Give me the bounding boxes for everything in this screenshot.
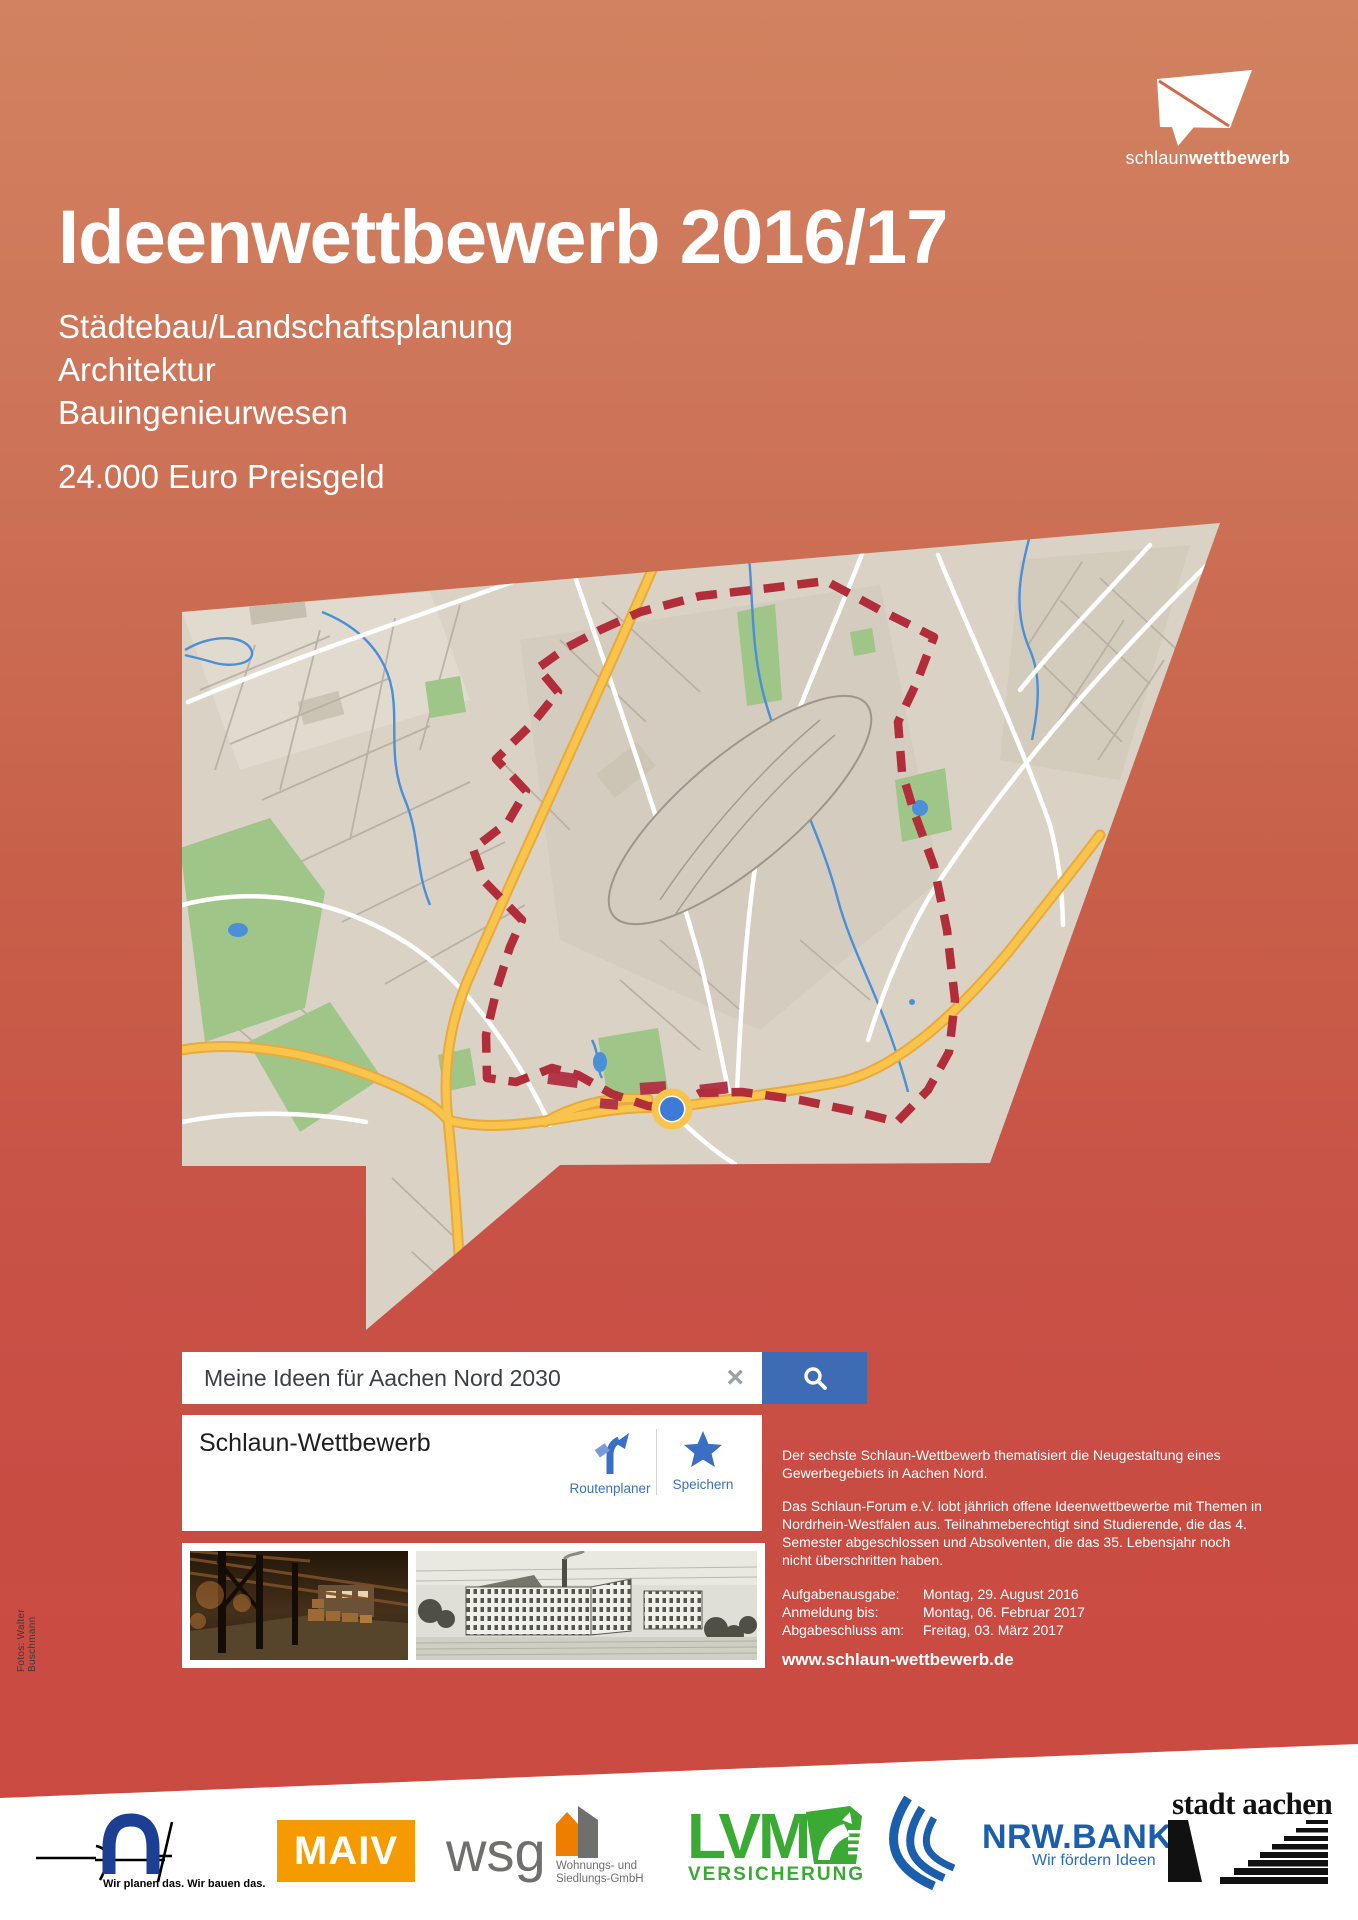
website-link[interactable]: www.schlaun-wettbewerb.de xyxy=(782,1651,1262,1669)
maiv-logo: MAIV xyxy=(277,1820,415,1882)
search-input[interactable] xyxy=(182,1365,708,1392)
wsg-caption: Wohnungs- und Siedlungs-GmbH xyxy=(556,1860,644,1886)
lvm-subline: VERSICHERUNG xyxy=(688,1864,865,1886)
poster: schlaunwettbewerb Ideenwettbewerb 2016/1… xyxy=(0,0,1358,1920)
photo-credit: Fotos: Walter Buschmann xyxy=(16,1552,38,1672)
date-label: Abgabeschluss am: xyxy=(782,1621,923,1639)
date-row: Abgabeschluss am: Freitag, 03. März 2017 xyxy=(782,1621,1262,1639)
stadt-aachen-wordmark: stadt aachen xyxy=(1172,1786,1332,1822)
date-row: Anmeldung bis: Montag, 06. Februar 2017 xyxy=(782,1603,1262,1621)
details-body: Das Schlaun-Forum e.V. lobt jährlich off… xyxy=(782,1497,1262,1569)
nrw-bank-icon xyxy=(882,1796,982,1890)
search-bar: × xyxy=(182,1352,762,1404)
wsg-wordmark: wsg xyxy=(446,1824,546,1880)
star-icon xyxy=(682,1429,724,1471)
date-label: Aufgabenausgabe: xyxy=(782,1585,923,1603)
search-button[interactable] xyxy=(762,1352,867,1404)
clear-icon[interactable]: × xyxy=(708,1352,762,1404)
speichern-label: Speichern xyxy=(673,1477,734,1492)
date-row: Aufgabenausgabe: Montag, 29. August 2016 xyxy=(782,1585,1262,1603)
photo-historic-factory-engraving xyxy=(416,1551,757,1660)
lvm-wordmark: LVM xyxy=(687,1804,808,1868)
lvm-horse-icon xyxy=(806,1806,862,1864)
date-value: Montag, 29. August 2016 xyxy=(923,1585,1079,1603)
search-icon xyxy=(802,1365,828,1391)
details-column: Der sechste Schlaun-Wettbewerb thematisi… xyxy=(782,1440,1262,1669)
dates-table: Aufgabenausgabe: Montag, 29. August 2016… xyxy=(782,1585,1262,1639)
directions-icon xyxy=(588,1429,632,1475)
wsg-houses-icon xyxy=(552,1802,604,1858)
routenplaner-button[interactable]: Routenplaner xyxy=(564,1429,656,1496)
map-marker xyxy=(660,1097,684,1121)
photos-card xyxy=(182,1543,765,1668)
speichern-button[interactable]: Speichern xyxy=(657,1429,749,1492)
photo-warehouse-interior xyxy=(190,1551,408,1660)
place-card-title: Schlaun-Wettbewerb xyxy=(199,1429,431,1458)
wsg-caption-line: Siedlungs-GmbH xyxy=(556,1873,644,1886)
routenplaner-label: Routenplaner xyxy=(569,1481,650,1496)
place-card: Schlaun-Wettbewerb Routenplaner Speicher… xyxy=(182,1415,762,1531)
maiv-wordmark: MAIV xyxy=(294,1829,398,1874)
date-value: Montag, 06. Februar 2017 xyxy=(923,1603,1085,1621)
details-intro: Der sechste Schlaun-Wettbewerb thematisi… xyxy=(782,1446,1262,1482)
stadt-aachen-icon xyxy=(1164,1820,1330,1884)
place-card-actions: Routenplaner Speichern xyxy=(564,1429,749,1496)
date-value: Freitag, 03. März 2017 xyxy=(923,1621,1064,1639)
architects-slogan: Wir planen das. Wir bauen das. xyxy=(103,1878,265,1890)
wsg-caption-line: Wohnungs- und xyxy=(556,1860,644,1873)
date-label: Anmeldung bis: xyxy=(782,1603,923,1621)
nrw-bank-slogan: Wir fördern Ideen xyxy=(1032,1852,1156,1870)
